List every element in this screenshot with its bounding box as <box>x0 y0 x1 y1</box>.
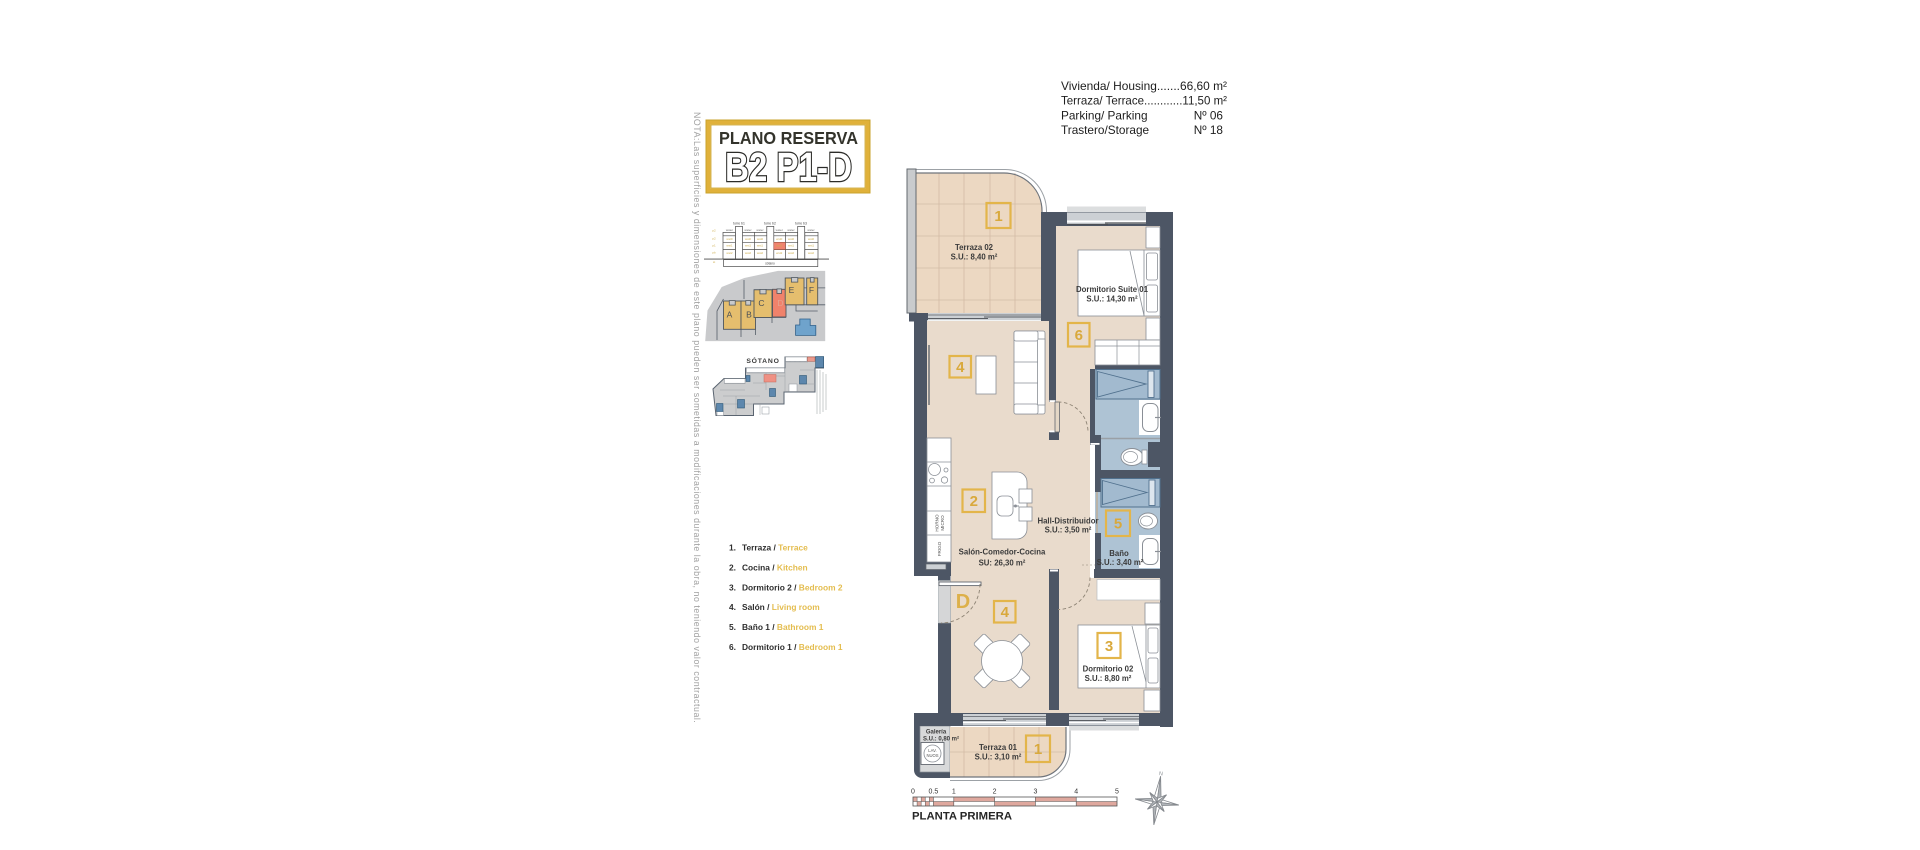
svg-text:torre b1: torre b1 <box>733 222 745 226</box>
svg-text:Terraza / Terrace: Terraza / Terrace <box>742 543 808 553</box>
svg-text:Baño 1 / Bathroom 1: Baño 1 / Bathroom 1 <box>742 622 824 632</box>
svg-text:D: D <box>777 298 783 308</box>
svg-text:st: st <box>713 260 716 264</box>
svg-text:wst0: wst0 <box>745 237 752 241</box>
svg-text:F: F <box>809 285 814 295</box>
svg-text:0: 0 <box>911 789 915 796</box>
svg-text:SÓTANO: SÓTANO <box>746 356 779 365</box>
svg-text:Terraza 02: Terraza 02 <box>955 243 994 252</box>
svg-text:3.: 3. <box>729 582 736 592</box>
svg-text:3: 3 <box>1105 638 1113 655</box>
svg-text:wst2: wst2 <box>776 251 783 255</box>
svg-text:Terraza 01: Terraza 01 <box>979 743 1018 752</box>
svg-text:NOTA:Las superficies y dimensi: NOTA:Las superficies y dimensiones de es… <box>692 112 702 723</box>
svg-text:S.U.: 8,40 m²: S.U.: 8,40 m² <box>951 253 998 262</box>
svg-text:Trastero/Storage: Trastero/Storage <box>1061 123 1150 137</box>
svg-text:5: 5 <box>1115 789 1119 796</box>
svg-text:4: 4 <box>1001 604 1010 621</box>
svg-text:HORNO: HORNO <box>935 514 940 532</box>
svg-text:Hall-Distribuidor: Hall-Distribuidor <box>1037 517 1098 526</box>
svg-text:wst0: wst0 <box>788 237 795 241</box>
svg-text:B2 P1-D: B2 P1-D <box>725 144 852 190</box>
svg-text:1.: 1. <box>729 543 736 553</box>
svg-text:2.: 2. <box>729 562 736 572</box>
svg-text:p2: p2 <box>712 229 716 233</box>
svg-text:1: 1 <box>1034 741 1042 758</box>
svg-text:S.U.: 8,80 m²: S.U.: 8,80 m² <box>1085 674 1132 683</box>
svg-text:3: 3 <box>1033 789 1037 796</box>
svg-text:wst1: wst1 <box>808 244 815 248</box>
svg-text:Salón / Living room: Salón / Living room <box>742 602 820 612</box>
svg-text:S.U.: 3,50 m²: S.U.: 3,50 m² <box>1045 526 1092 535</box>
svg-text:torre b3: torre b3 <box>795 222 807 226</box>
svg-text:Vivienda/ Housing.......66,60: Vivienda/ Housing.......66,60 m² <box>1061 79 1227 93</box>
svg-text:4.: 4. <box>729 602 736 612</box>
svg-text:1: 1 <box>994 208 1002 225</box>
svg-text:wst2: wst2 <box>808 251 815 255</box>
svg-text:Nº 06: Nº 06 <box>1194 108 1224 122</box>
svg-text:C: C <box>758 298 764 308</box>
svg-text:A: A <box>727 310 733 320</box>
svg-text:Cocina / Kitchen: Cocina / Kitchen <box>742 562 808 572</box>
svg-text:wster: wster <box>744 228 751 232</box>
svg-text:S.U.: 14,30 m²: S.U.: 14,30 m² <box>1086 295 1138 304</box>
svg-text:wst0: wst0 <box>808 237 815 241</box>
svg-text:Baño: Baño <box>1109 549 1129 558</box>
svg-text:5.: 5. <box>729 622 736 632</box>
svg-text:Parking/ Parking: Parking/ Parking <box>1061 108 1148 122</box>
svg-text:E: E <box>789 285 795 295</box>
svg-text:wster: wster <box>726 228 733 232</box>
svg-text:NUOS: NUOS <box>926 753 938 758</box>
svg-text:4: 4 <box>956 359 965 376</box>
svg-text:Nº 18: Nº 18 <box>1194 123 1224 137</box>
svg-text:1: 1 <box>952 789 956 796</box>
svg-text:Dormitorio 02: Dormitorio 02 <box>1083 665 1134 674</box>
svg-text:wst2: wst2 <box>726 251 733 255</box>
svg-text:wst1: wst1 <box>776 244 783 248</box>
svg-text:pb: pb <box>712 251 716 255</box>
svg-text:wster: wster <box>776 228 783 232</box>
svg-text:PLANTA PRIMERA: PLANTA PRIMERA <box>912 811 1012 823</box>
svg-text:S.U.: 0,80 m²: S.U.: 0,80 m² <box>923 736 959 743</box>
svg-text:wst2: wst2 <box>745 251 752 255</box>
svg-text:S.U.: 3,40 m²: S.U.: 3,40 m² <box>1097 558 1144 567</box>
svg-text:wster: wster <box>756 228 763 232</box>
svg-text:wst0: wst0 <box>726 237 733 241</box>
svg-text:S.U.: 3,10 m²: S.U.: 3,10 m² <box>975 753 1022 762</box>
svg-text:wst1: wst1 <box>788 244 795 248</box>
svg-text:FRIGO: FRIGO <box>937 541 942 556</box>
svg-text:B: B <box>746 310 752 320</box>
svg-text:Dormitorio 2 / Bedroom 2: Dormitorio 2 / Bedroom 2 <box>742 582 843 592</box>
svg-text:D: D <box>956 591 970 613</box>
svg-text:wst2: wst2 <box>788 251 795 255</box>
svg-text:5: 5 <box>1114 516 1122 533</box>
svg-text:Terraza/ Terrace............11: Terraza/ Terrace............11,50 m² <box>1061 94 1227 108</box>
svg-text:MICRO: MICRO <box>940 515 945 531</box>
svg-text:Dormitorio 1 / Bedroom 1: Dormitorio 1 / Bedroom 1 <box>742 642 843 652</box>
svg-text:torre b2: torre b2 <box>764 222 776 226</box>
svg-text:wst2: wst2 <box>757 251 764 255</box>
svg-text:6.: 6. <box>729 642 736 652</box>
svg-text:wst1: wst1 <box>726 244 733 248</box>
svg-text:Salón-Comedor-Cocina: Salón-Comedor-Cocina <box>959 548 1046 557</box>
svg-text:SU: 26,30 m²: SU: 26,30 m² <box>979 559 1026 568</box>
svg-text:4: 4 <box>1074 789 1078 796</box>
svg-text:wster: wster <box>807 228 814 232</box>
svg-text:p2: p2 <box>712 237 716 241</box>
svg-text:Dormitorio Suite 01: Dormitorio Suite 01 <box>1076 285 1149 294</box>
svg-text:wst0: wst0 <box>757 237 764 241</box>
svg-text:Galería: Galería <box>926 730 947 736</box>
svg-text:0.5: 0.5 <box>929 789 939 796</box>
svg-text:2: 2 <box>993 789 997 796</box>
svg-text:wst1: wst1 <box>757 244 764 248</box>
svg-text:wster: wster <box>787 228 794 232</box>
svg-text:sótano: sótano <box>765 262 775 266</box>
svg-text:wst0: wst0 <box>776 237 783 241</box>
svg-text:6: 6 <box>1075 327 1083 344</box>
svg-text:wst1: wst1 <box>745 244 752 248</box>
svg-text:p1: p1 <box>712 244 716 248</box>
svg-text:2: 2 <box>970 493 978 510</box>
